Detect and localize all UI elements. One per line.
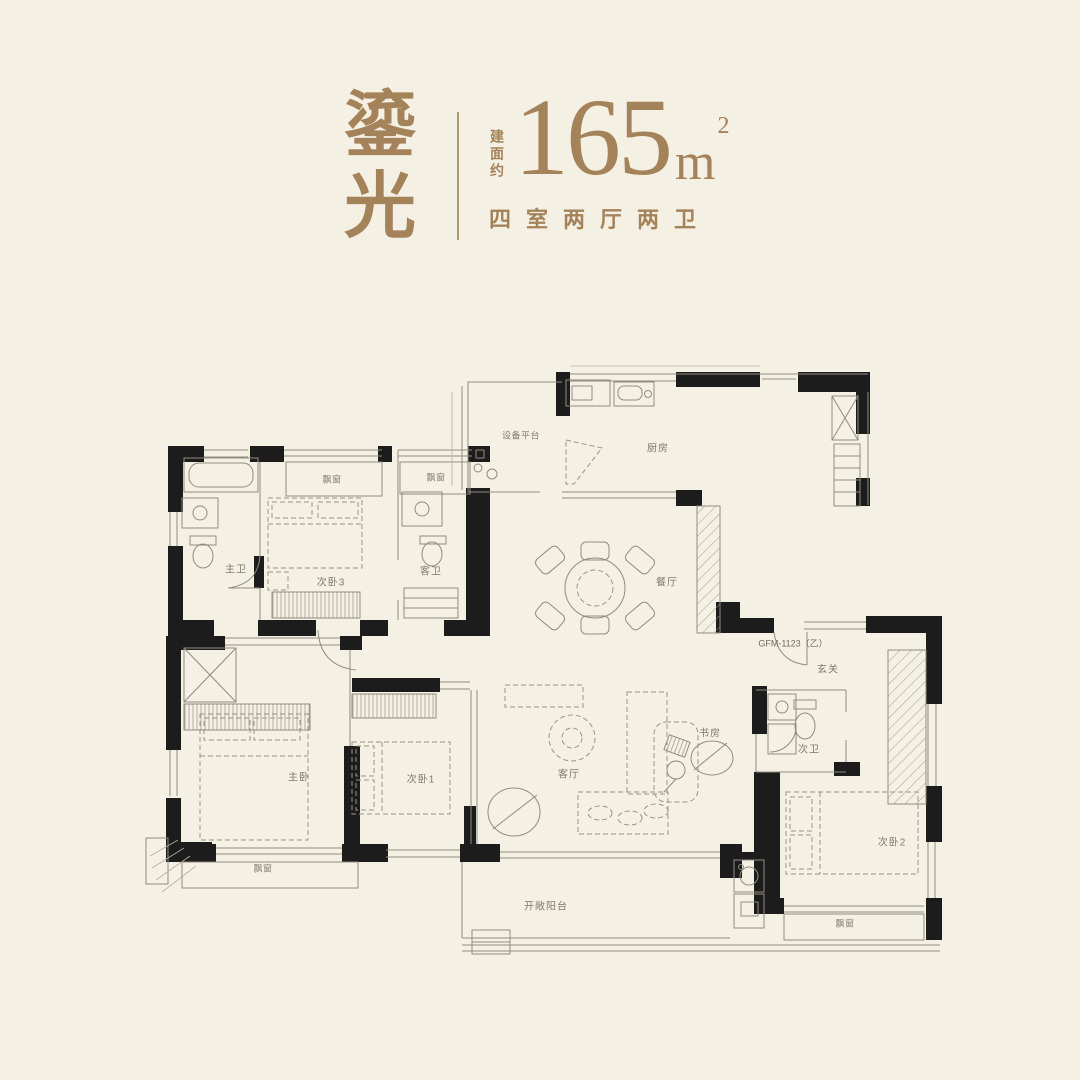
walls-layer [166, 372, 942, 940]
room-label-foyer: 玄关 [817, 661, 839, 676]
bay-window-label-1: 飘窗 [322, 473, 341, 486]
floorplan-drawing [0, 0, 1080, 1080]
room-label-dining: 餐厅 [656, 574, 678, 589]
room-label-balcony: 开敞阳台 [524, 898, 568, 913]
furniture-layer [200, 440, 918, 874]
room-label-kitchen: 厨房 [647, 440, 669, 455]
room-label-master-bedroom: 主卧 [288, 769, 310, 784]
room-label-master-bath: 主卫 [225, 561, 247, 576]
room-label-bedroom3: 次卧3 [317, 574, 346, 589]
room-label-living: 客厅 [558, 766, 580, 781]
room-label-bedroom1: 次卧1 [407, 771, 436, 786]
bay-window-label-4: 飘窗 [835, 917, 854, 930]
room-label-guest-bath: 客卫 [420, 563, 442, 578]
bay-window-label-3: 飘窗 [253, 862, 272, 875]
door-code-label: GFM-1123（乙） [758, 637, 827, 650]
room-label-second-bath: 次卫 [798, 741, 820, 756]
bay-window-label-2: 飘窗 [426, 471, 445, 484]
room-label-bedroom2: 次卧2 [878, 834, 907, 849]
room-label-equipment-platform: 设备平台 [502, 429, 540, 442]
floorplan-poster: 鎏光 建面约 165 m 2 四室两厅两卫 [0, 0, 1080, 1080]
room-label-study: 书房 [699, 725, 721, 740]
